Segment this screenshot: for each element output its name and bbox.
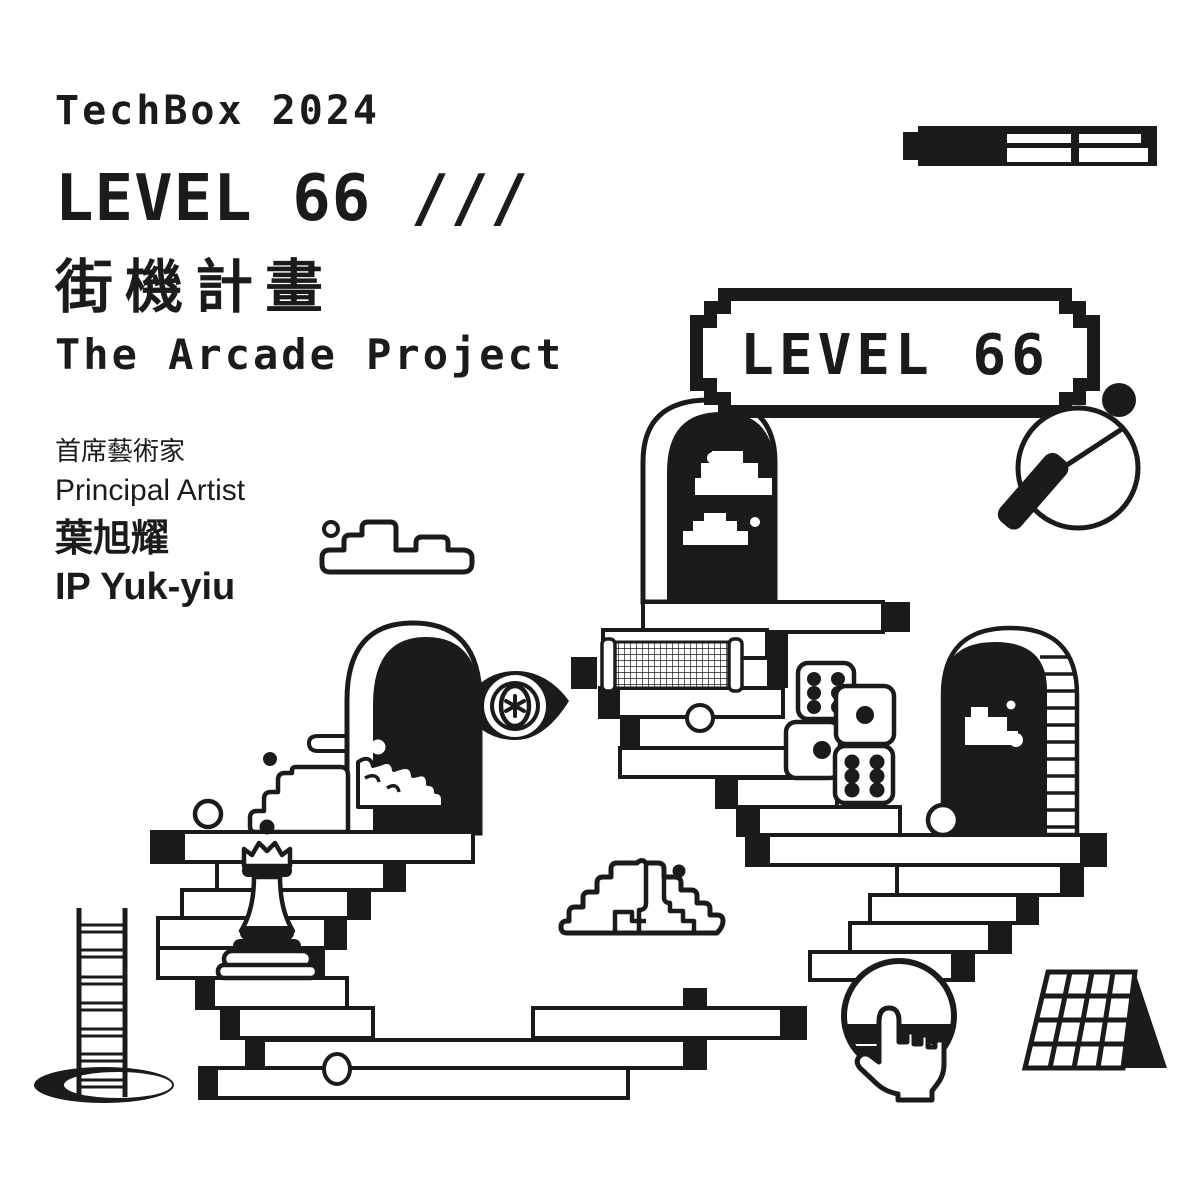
- arch-doorway-right: [943, 628, 1080, 835]
- hand-cursor-sphere-icon: [840, 961, 958, 1100]
- outline-cloud-icon: [322, 522, 472, 572]
- credit-artist-en: IP Yuk-yiu: [55, 568, 245, 606]
- credit-artist-zh: 葉旭耀: [55, 520, 245, 558]
- table-tennis-net-icon: [602, 639, 742, 691]
- staircase-left: [152, 832, 473, 1008]
- grid-panel-icon: [1025, 972, 1167, 1068]
- level-sign: LEVEL 66: [690, 288, 1100, 418]
- stepped-cloud-left: [195, 752, 348, 832]
- sign-label: LEVEL 66: [740, 323, 1050, 388]
- ledge: [309, 736, 348, 751]
- arch-doorway-center: [643, 400, 775, 602]
- white-ball: [928, 805, 958, 835]
- poster-canvas: LEVEL 66: [0, 0, 1200, 1200]
- credits-block: 首席藝術家 Principal Artist 葉旭耀 IP Yuk-yiu: [55, 438, 245, 606]
- hole-icon: [34, 1067, 174, 1103]
- die-one-center: [836, 686, 894, 744]
- credit-role-zh: 首席藝術家: [55, 438, 245, 464]
- die-six-bottom: [835, 746, 893, 803]
- credit-role-en: Principal Artist: [55, 476, 245, 506]
- die-one-left: [786, 722, 840, 778]
- mountain-cloud-icon: [561, 861, 723, 934]
- poster-title-zh: 街機計畫: [55, 240, 335, 324]
- ping-pong-ball-icon: [1102, 383, 1136, 417]
- event-title: TechBox 2024: [55, 88, 380, 134]
- poster-subtitle: The Arcade Project: [55, 330, 564, 379]
- poster-title-en: LEVEL 66 ///: [55, 162, 529, 236]
- marker-pen-icon: [903, 126, 1157, 166]
